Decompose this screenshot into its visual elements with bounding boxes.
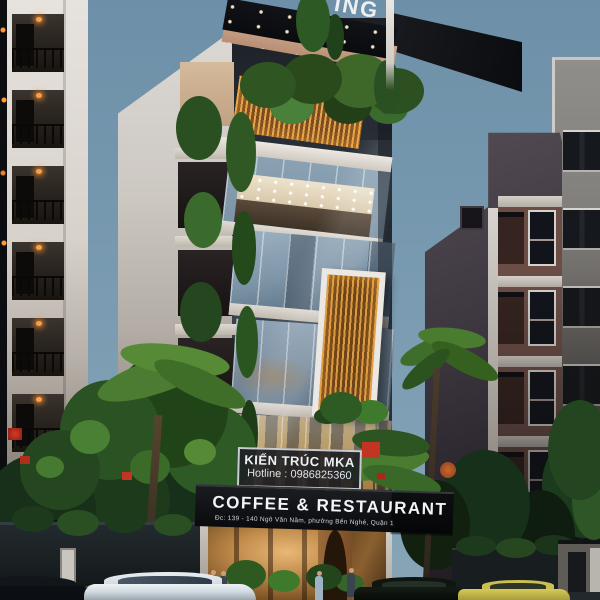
balcony-lamp (36, 397, 42, 402)
small-window (460, 206, 484, 230)
balcony-railing (12, 48, 64, 68)
arch-inlay (323, 530, 347, 600)
balcony-slab (175, 324, 237, 335)
facade-corner-strip (386, 0, 394, 90)
hedge-right (456, 536, 496, 556)
balcony-lamp (36, 321, 42, 326)
roof-garden-foliage (240, 62, 296, 108)
red-flowers (8, 428, 22, 440)
balcony-lamp (36, 93, 42, 98)
tree-highlights-left (70, 420, 110, 454)
balcony (12, 166, 64, 224)
balcony-railing (12, 200, 64, 220)
pedestrian (315, 576, 323, 600)
architectural-render-scene: ING (0, 0, 600, 600)
white-sedan-body (84, 584, 256, 600)
balcony (12, 318, 64, 376)
partial-sign-text: ING (332, 0, 381, 24)
balcony-lamp (36, 17, 42, 22)
palm-fruit-cluster (440, 462, 456, 478)
balcony-recess (178, 426, 234, 492)
balcony-railing (12, 276, 64, 296)
planter-foliage (320, 392, 362, 424)
green-wall-vines (226, 112, 256, 192)
storefront-sign-band: COFFEE & RESTAURANT Đc: 139 - 140 Ngô Vă… (195, 484, 454, 534)
taxi-body (458, 589, 570, 600)
balcony (12, 242, 64, 300)
architect-sign-plate: KIẾN TRÚC MKA Hotline : 0986825360 (237, 447, 362, 490)
architect-hotline: Hotline : 0986825360 (239, 467, 359, 482)
balcony (12, 14, 64, 72)
dark-car-body (0, 586, 92, 600)
shadow-overlay (498, 196, 562, 600)
balcony-recess (178, 250, 234, 316)
gate-door (568, 552, 586, 596)
balcony-slab (175, 412, 237, 423)
balcony-lamp (36, 169, 42, 174)
luxury-car-body (354, 587, 470, 600)
far-left-building-sliver (0, 0, 7, 600)
balcony-railing (12, 124, 64, 144)
balcony-slab (175, 236, 237, 247)
balcony-railing (12, 352, 64, 372)
balcony-lamp (36, 245, 42, 250)
hedge-left (12, 506, 54, 532)
balcony-plants (176, 96, 222, 160)
balcony (12, 90, 64, 148)
